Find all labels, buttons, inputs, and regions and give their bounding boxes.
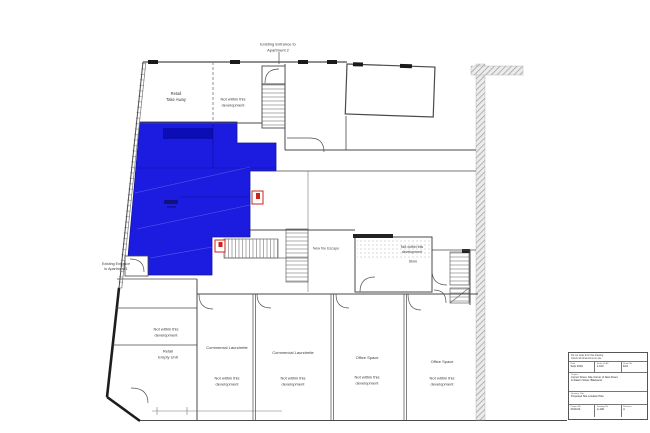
top-right-block (345, 62, 435, 117)
title-block: Do not scale from this drawing. Check al… (568, 352, 648, 420)
label-new-fire-escape: New fire Escape (313, 246, 339, 251)
label-entrance-apt1: Existing Entrance to Apartment 1 (102, 262, 130, 272)
label-room-name: Office Space (431, 359, 454, 365)
boundary-hatch (471, 64, 523, 420)
door-swing-arc (131, 388, 148, 403)
date-cell: Date Sept 2019 (569, 362, 595, 372)
title-block-meta-row: Date Sept 2019 Scale @ A3 1:100 Sheet No… (569, 362, 647, 373)
label-room-note: Not within this development (355, 374, 380, 385)
door-swing-arc (408, 294, 421, 310)
fire-door-icon (215, 240, 225, 252)
label-store: Store (409, 259, 418, 264)
floor-plan-drawing (0, 0, 650, 433)
drawing-title-section: Drawing Title: Proposed Site Location Pl… (569, 392, 647, 405)
label-store-not-within: Not within this development (401, 245, 423, 255)
store-room (353, 234, 432, 292)
project-section: Project: Corner Street, Site Corner of N… (569, 373, 647, 392)
title-block-ids-row: Project No 2019-04 Drawing No A-100 Revi… (569, 405, 647, 417)
label-retail-empty-unit: Retail Empty Unit (158, 348, 178, 359)
drawing-no-cell: Drawing No A-100 (595, 405, 621, 417)
sheet-cell: Sheet No E01 (622, 362, 647, 372)
project-no-cell: Project No 2019-04 (569, 405, 595, 417)
revision-cell: Revision A (622, 405, 647, 417)
label-not-within-top: Not within this development (221, 96, 246, 107)
label-room-name: Commercial Laundrette (272, 350, 314, 356)
staircase (432, 249, 476, 305)
door-swing-arc (199, 294, 213, 309)
door-swing-arc (434, 290, 446, 303)
note-line: Check all dimensions on site. (571, 357, 645, 360)
label-not-within-left: Not within this development (154, 326, 179, 337)
door-swing-arc (336, 294, 349, 308)
label-room-note: Not within this development (430, 375, 455, 386)
title-block-notes: Do not scale from this drawing. Check al… (569, 353, 647, 362)
label-room-name: Commercial Laundrette (206, 345, 248, 351)
fire-door-icon (252, 191, 263, 204)
label-room-note: Not within this development (215, 375, 240, 386)
scale-cell: Scale @ A3 1:100 (595, 362, 621, 372)
door-swing-arc (257, 294, 271, 308)
door-swing-arc (432, 270, 447, 285)
staircase (262, 66, 285, 128)
label-room-note: Not within this development (281, 375, 306, 386)
label-room-name: Office Space (356, 355, 379, 361)
floor-plan-page: Existing Entrance to Apartment 2 Retail … (0, 0, 650, 433)
label-entrance-apt2: Existing Entrance to Apartment 2 (260, 41, 296, 52)
label-retail-take-away: Retail Take Away (166, 91, 186, 103)
